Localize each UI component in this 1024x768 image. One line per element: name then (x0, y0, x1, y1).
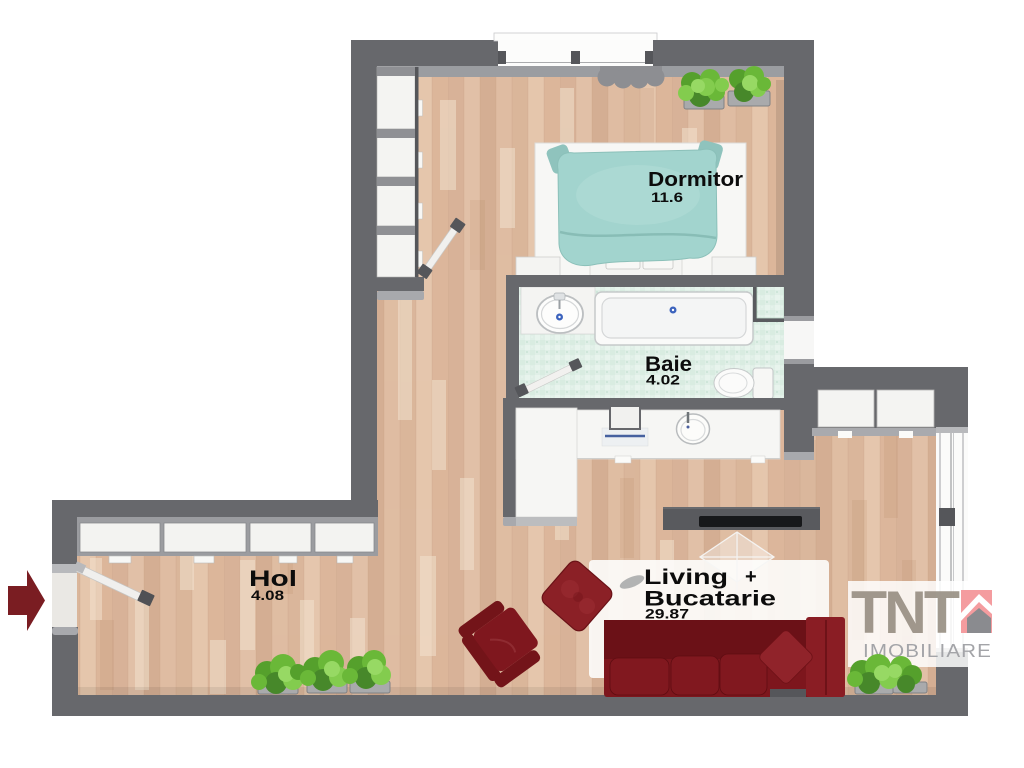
svg-text:29.87: 29.87 (645, 607, 689, 622)
svg-text:TNT: TNT (851, 579, 959, 646)
svg-text:4.08: 4.08 (251, 587, 284, 603)
svg-text:11.6: 11.6 (651, 189, 683, 205)
svg-text:+: + (745, 566, 757, 588)
svg-text:Dormitor: Dormitor (648, 168, 743, 191)
svg-text:Living: Living (644, 565, 728, 589)
svg-text:4.02: 4.02 (646, 372, 680, 388)
